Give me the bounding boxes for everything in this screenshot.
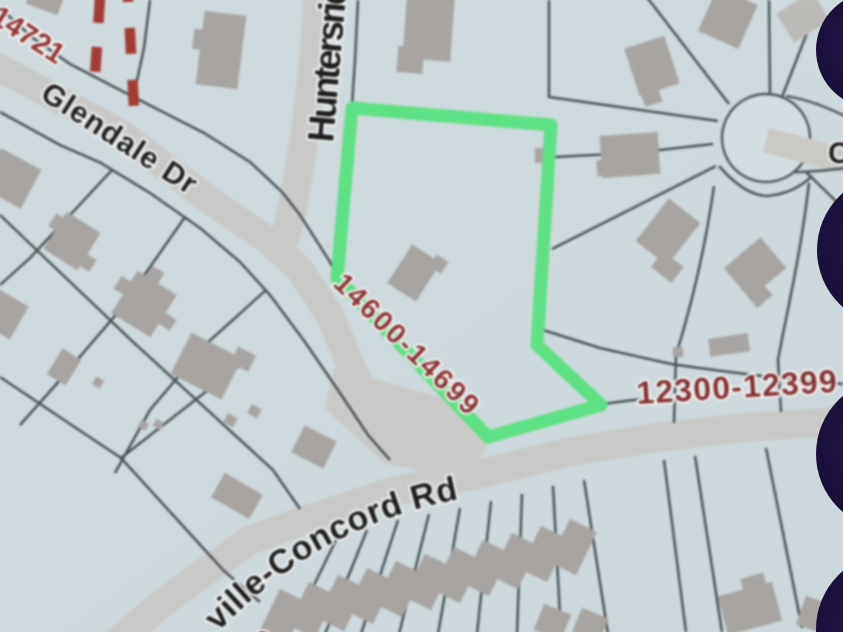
svg-text:C: C bbox=[828, 137, 843, 170]
